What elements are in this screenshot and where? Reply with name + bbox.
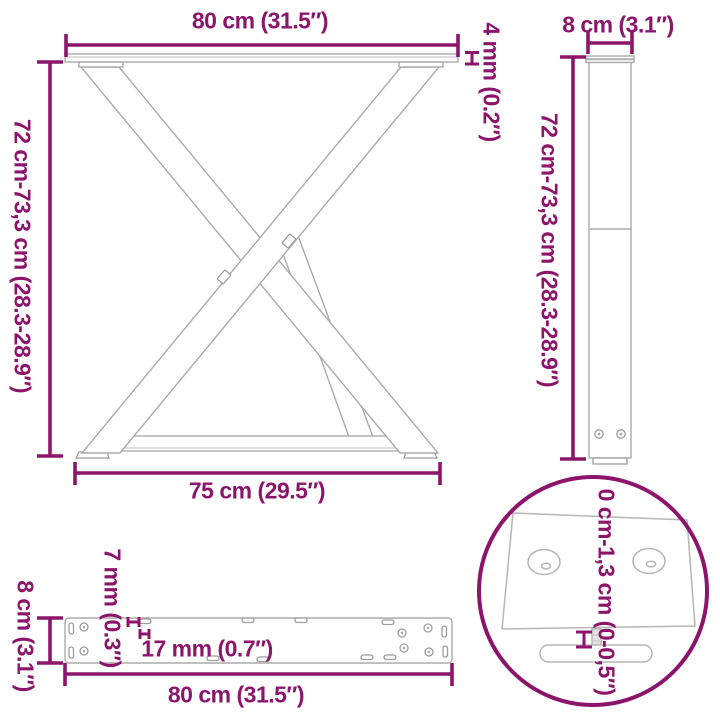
side-height-label: 72 cm-73,3 cm (28.3-28.9″) [538,113,561,387]
plate-length-label: 80 cm (31.5″) [168,684,304,707]
side-view-drawing [586,56,634,464]
side-depth-label: 8 cm (3.1″) [562,14,674,37]
plate-hole-diameter-label: 7 mm (0.3″) [101,548,124,667]
front-bottom-width-label: 75 cm (29.5″) [189,480,325,503]
front-height-label: 72 cm-73,3 cm (28.3-28.9″) [11,119,34,393]
plate-depth-label: 8 cm (3.1″) [14,580,37,692]
front-top-width-label: 80 cm (31.5″) [192,10,328,33]
front-view-drawing [65,54,458,458]
foot-adjustable-height-label: 0 cm-1,3 cm (0-0,5″) [595,489,618,696]
plate-hole-spacing-label: 17 mm (0.7″) [141,638,273,661]
product-dimension-diagram: 80 cm (31.5″) 4 mm (0.2″) 72 cm-73,3 cm … [0,0,720,720]
front-plate-thickness-label: 4 mm (0.2″) [480,22,503,141]
